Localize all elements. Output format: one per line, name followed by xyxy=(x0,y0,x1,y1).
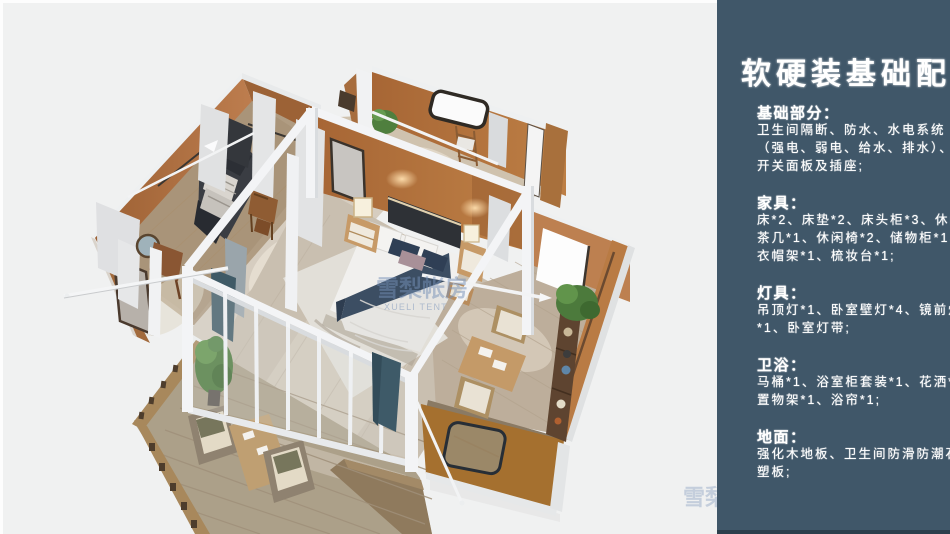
svg-text:雪梨帐房: 雪梨帐房 xyxy=(376,275,468,301)
svg-text:XUELI TENT: XUELI TENT xyxy=(384,302,448,312)
